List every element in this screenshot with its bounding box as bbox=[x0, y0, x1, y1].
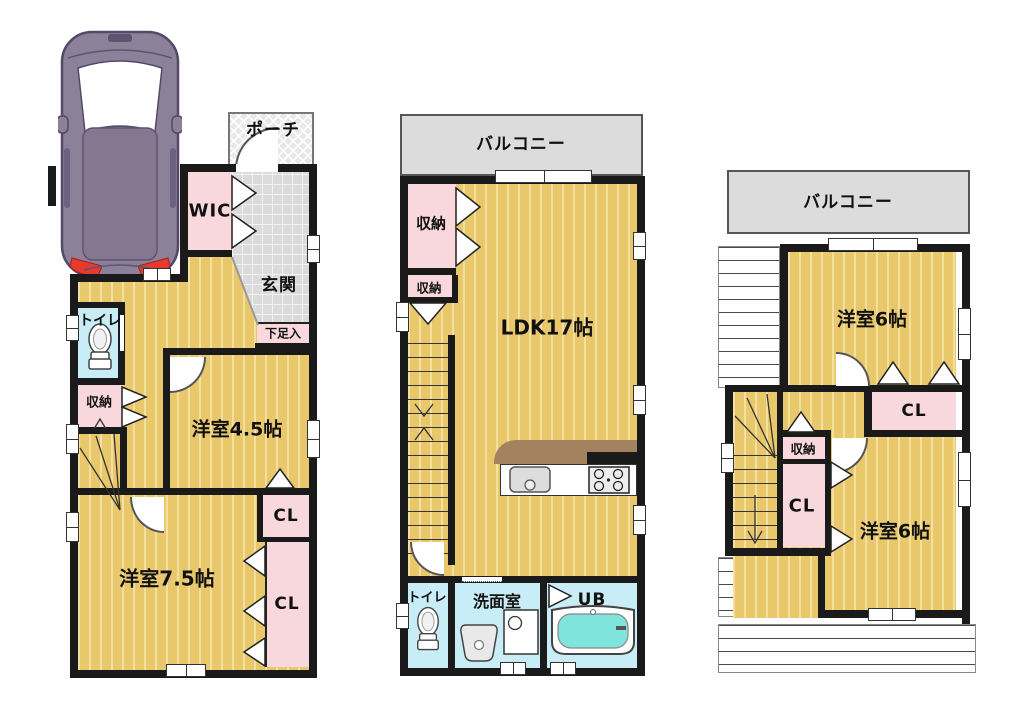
roof-eave-bottom bbox=[718, 624, 976, 673]
balcony-label-f3: バルコニー bbox=[803, 188, 893, 213]
washroom-opening bbox=[462, 577, 502, 582]
porch-label: ポーチ bbox=[246, 116, 300, 141]
window bbox=[828, 238, 918, 251]
closet-b-label-f3: CL bbox=[789, 496, 816, 517]
room75-label: 洋室7.5帖 bbox=[119, 563, 214, 592]
washbasin-icon bbox=[458, 622, 500, 664]
shoe-cabinet-label: 下足入 bbox=[265, 325, 301, 342]
wall bbox=[408, 297, 452, 303]
wall bbox=[163, 355, 170, 488]
kitchen-sink-icon bbox=[508, 466, 552, 494]
window bbox=[633, 232, 646, 260]
window bbox=[307, 420, 320, 458]
wall bbox=[448, 583, 455, 668]
window bbox=[550, 662, 576, 675]
window bbox=[66, 424, 79, 454]
floor-plan-canvas: ポーチ WIC 玄関 下足入 トイレ 収納 洋室4.5帖 CL 洋室7.5帖 C… bbox=[0, 0, 1024, 709]
storage-label-f1: 収納 bbox=[86, 392, 112, 411]
wall bbox=[825, 430, 831, 556]
window bbox=[307, 235, 320, 263]
window bbox=[633, 385, 646, 415]
wall bbox=[255, 343, 317, 349]
ldk-label: LDK17帖 bbox=[501, 312, 594, 341]
wall bbox=[400, 576, 645, 583]
closet-b-label-f1: CL bbox=[274, 594, 299, 614]
window bbox=[66, 512, 79, 542]
window bbox=[495, 170, 592, 183]
wall bbox=[257, 537, 309, 542]
window bbox=[868, 608, 916, 621]
closet-a-label-f1: CL bbox=[273, 506, 298, 526]
wall bbox=[70, 302, 125, 308]
wall bbox=[78, 488, 262, 495]
wall bbox=[777, 392, 783, 556]
stairs-f3 bbox=[733, 455, 777, 553]
entry-opening bbox=[236, 164, 278, 172]
stove-icon bbox=[588, 466, 630, 494]
wall bbox=[725, 548, 825, 556]
wall bbox=[257, 495, 263, 537]
wall bbox=[70, 378, 125, 385]
car-top-view-icon bbox=[58, 28, 182, 280]
wall bbox=[257, 488, 309, 495]
wall bbox=[408, 268, 456, 275]
wall bbox=[818, 556, 825, 618]
window bbox=[396, 603, 409, 629]
window bbox=[143, 268, 171, 281]
unit-bath-label: UB bbox=[578, 590, 607, 610]
wall bbox=[725, 385, 788, 392]
wall bbox=[120, 434, 127, 490]
roof-eave-upper-left bbox=[718, 246, 780, 388]
wall bbox=[180, 164, 188, 282]
wall bbox=[163, 348, 309, 355]
storage-label-f3: 収納 bbox=[790, 439, 815, 458]
room-a-label: 洋室6帖 bbox=[837, 305, 907, 332]
wall bbox=[783, 459, 825, 464]
wall bbox=[452, 275, 458, 303]
window bbox=[166, 664, 206, 677]
window bbox=[633, 505, 646, 535]
window bbox=[500, 662, 526, 675]
closet-a-label-f3: CL bbox=[901, 401, 926, 421]
wall bbox=[777, 430, 831, 437]
toilet-label-f1: トイレ bbox=[79, 310, 121, 330]
balcony-label-f2: バルコニー bbox=[476, 130, 566, 155]
window bbox=[958, 308, 971, 360]
wic-label: WIC bbox=[189, 201, 232, 222]
wall bbox=[587, 452, 637, 464]
window bbox=[396, 302, 409, 332]
window bbox=[721, 443, 734, 473]
storage-b-label-f2: 収納 bbox=[416, 278, 441, 297]
wall bbox=[540, 583, 547, 668]
wall bbox=[864, 392, 872, 430]
wall bbox=[780, 244, 788, 392]
wall bbox=[448, 335, 455, 565]
parking-marker bbox=[48, 166, 56, 206]
stairs-f2 bbox=[408, 343, 448, 560]
washing-machine-icon bbox=[502, 608, 540, 658]
washroom-label: 洗面室 bbox=[473, 588, 521, 612]
wall bbox=[780, 385, 962, 392]
window bbox=[958, 452, 971, 507]
wall bbox=[188, 250, 232, 257]
toilet-label-f2: トイレ bbox=[407, 587, 446, 606]
window bbox=[66, 315, 79, 341]
room-b-label: 洋室6帖 bbox=[860, 517, 930, 544]
wall bbox=[864, 430, 970, 437]
toilet-icon-f2 bbox=[414, 604, 442, 654]
room45-label: 洋室4.5帖 bbox=[192, 415, 283, 442]
entrance-label: 玄関 bbox=[261, 271, 297, 296]
storage-a-label-f2: 収納 bbox=[416, 213, 446, 234]
